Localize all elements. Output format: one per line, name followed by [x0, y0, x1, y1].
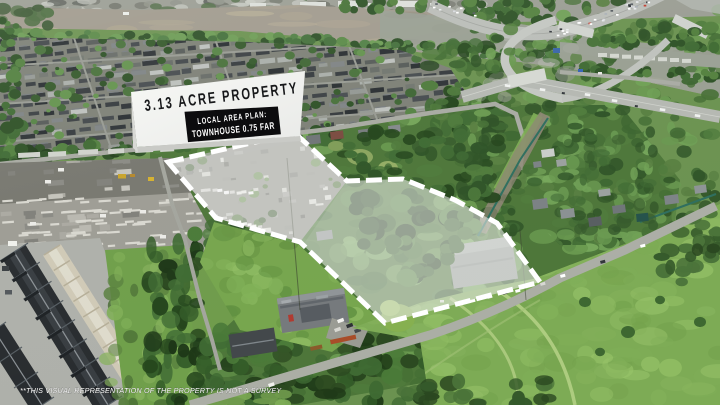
- svg-text:**THIS VISUAL REPRESENTATION O: **THIS VISUAL REPRESENTATION OF THE PROP…: [20, 386, 282, 395]
